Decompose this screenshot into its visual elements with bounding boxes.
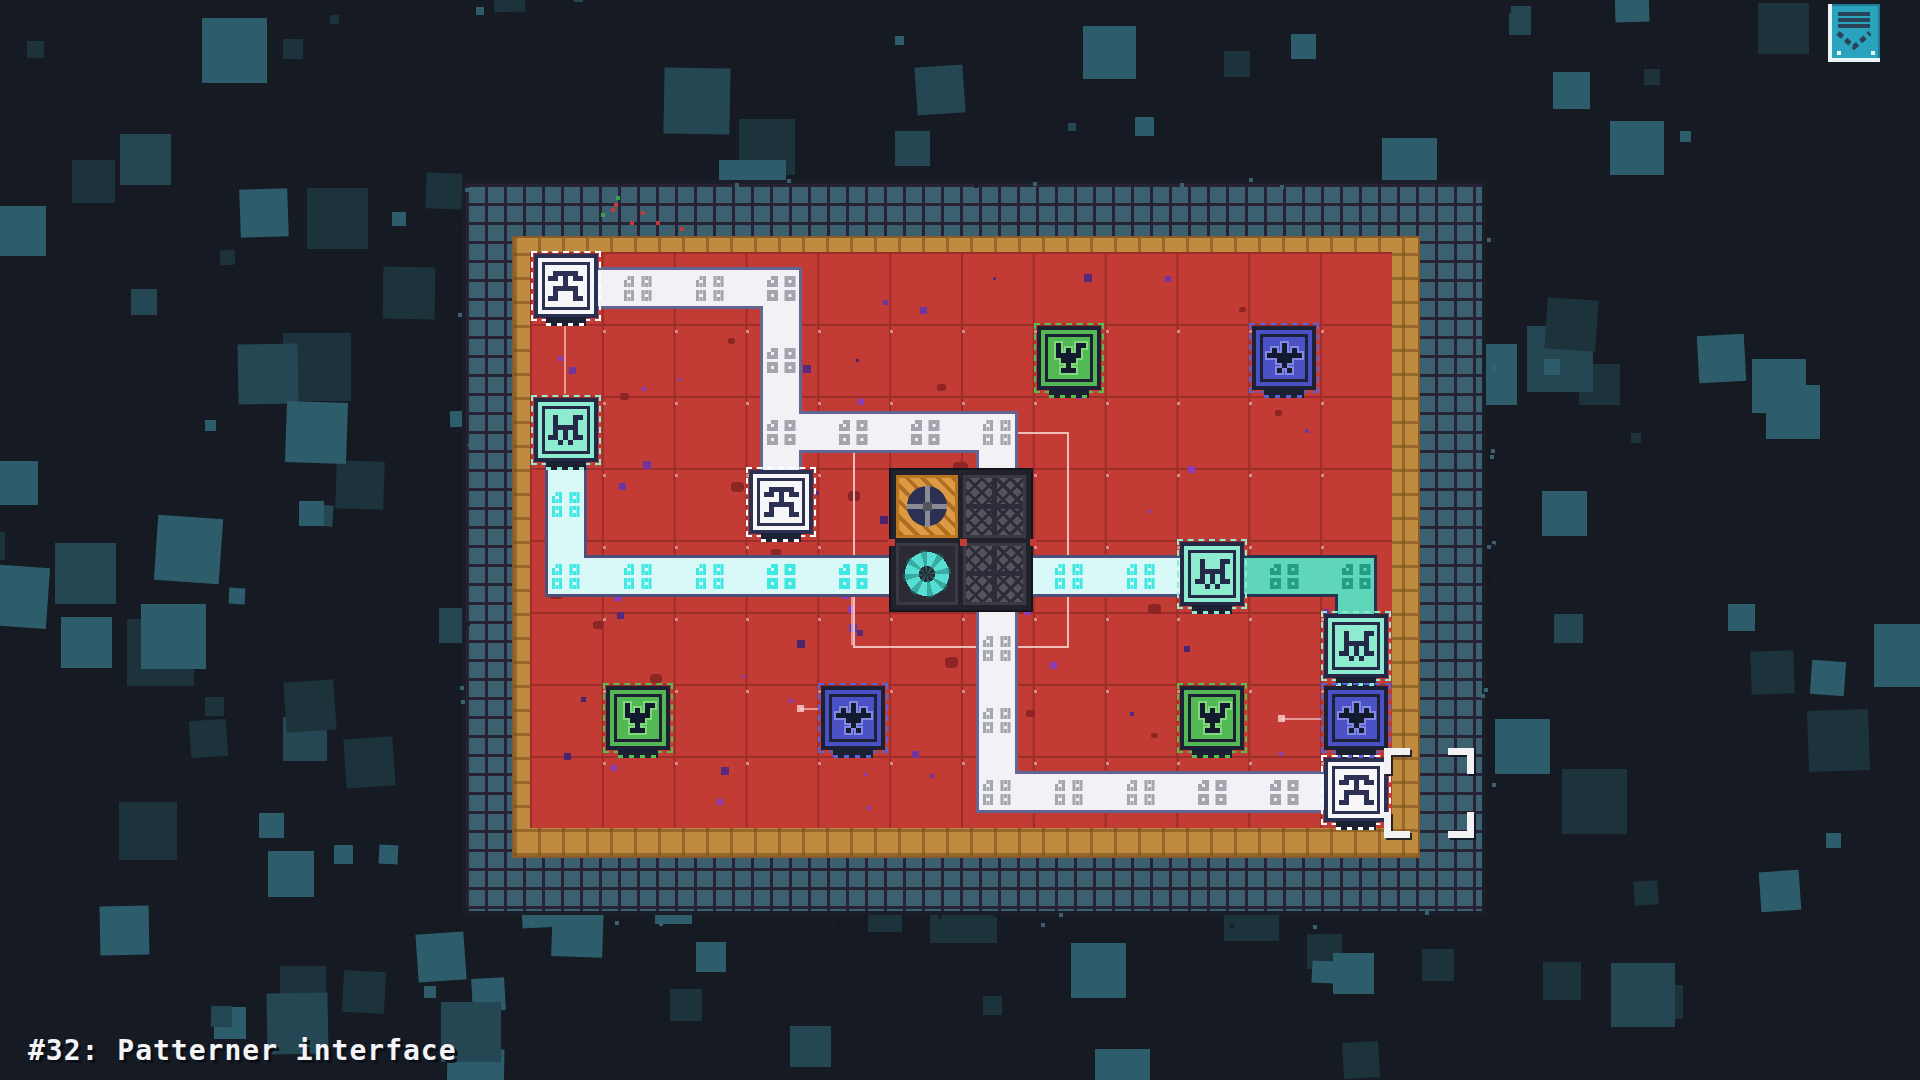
background-square xyxy=(27,41,44,58)
background-square xyxy=(1610,121,1664,175)
background-square xyxy=(1631,433,1641,443)
ring-dial xyxy=(903,550,951,598)
tile-goblet[interactable] xyxy=(606,686,670,750)
grid-dot xyxy=(1034,402,1037,405)
altar-glyph xyxy=(548,271,583,301)
background-square xyxy=(379,845,399,865)
background-square xyxy=(425,172,462,209)
emitter-glyph xyxy=(1339,631,1374,661)
background-square xyxy=(343,736,395,788)
tile-goblet[interactable] xyxy=(1180,686,1244,750)
grid-dot xyxy=(1106,762,1109,765)
background-square xyxy=(283,39,303,59)
pixels xyxy=(620,703,625,708)
grid-dot xyxy=(675,330,678,333)
background-square xyxy=(131,289,157,315)
grid-dot xyxy=(890,402,893,405)
tile-face xyxy=(1045,334,1093,382)
greek-key-ornament xyxy=(767,564,795,589)
path-ornament xyxy=(983,636,1011,661)
greek-key-ornament xyxy=(983,708,1011,733)
background-square xyxy=(1068,123,1076,131)
background-square xyxy=(1874,624,1920,687)
purple-splatter xyxy=(1130,712,1134,716)
purple-splatter xyxy=(1165,276,1171,282)
grid-dot xyxy=(1106,690,1109,693)
purple-splatter xyxy=(789,699,793,703)
purple-splatter xyxy=(856,359,859,362)
grid-dot xyxy=(962,762,965,765)
frame-speck xyxy=(832,921,836,925)
background-square xyxy=(383,267,436,320)
purple-splatter xyxy=(678,378,681,381)
greek-key-ornament xyxy=(624,564,652,589)
greek-key-ornament xyxy=(552,492,580,517)
grid-dot xyxy=(1106,330,1109,333)
frame-speck xyxy=(974,184,978,188)
tile-face xyxy=(542,406,590,454)
purple-splatter xyxy=(643,461,651,469)
machine-ornate-tile[interactable] xyxy=(963,475,1025,538)
background-square xyxy=(141,604,206,669)
frame-speck xyxy=(1425,911,1429,915)
background-square xyxy=(670,989,702,1021)
grid-dot xyxy=(818,618,821,621)
purple-splatter xyxy=(642,387,646,391)
frame-speck xyxy=(1041,923,1045,927)
background-square xyxy=(342,970,386,1014)
grid-dot xyxy=(890,330,893,333)
grid-dot xyxy=(1249,474,1252,477)
tile-socket xyxy=(761,533,801,542)
path-ornament xyxy=(1342,564,1370,589)
pixels xyxy=(696,276,700,280)
grid-dot xyxy=(1321,330,1324,333)
tile-face xyxy=(1188,694,1236,742)
frame-speck xyxy=(1493,578,1497,582)
dark-blob xyxy=(1026,710,1035,717)
background-square xyxy=(1611,963,1675,1027)
purple-splatter xyxy=(867,806,871,810)
link-hint-dot xyxy=(1278,715,1285,722)
purple-splatter xyxy=(1084,274,1092,282)
tile-socket xyxy=(833,749,873,758)
path-ornament xyxy=(983,420,1011,445)
grid-dot xyxy=(1106,474,1109,477)
background-square xyxy=(895,131,930,166)
grid-dot xyxy=(746,402,749,405)
background-square xyxy=(1633,880,1659,906)
frame-speck xyxy=(466,622,470,626)
tile-socket xyxy=(1049,389,1089,398)
frame-speck xyxy=(683,177,687,181)
tile-bird[interactable] xyxy=(1252,326,1316,390)
background-square xyxy=(1562,769,1627,834)
tile-socket xyxy=(1192,749,1232,758)
background-square xyxy=(476,7,484,15)
grid-dot xyxy=(746,546,749,549)
greek-key-ornament xyxy=(1342,564,1370,589)
level-label: #32: Patterner interface xyxy=(28,1034,457,1067)
path-ornament xyxy=(624,276,652,301)
frame-speck xyxy=(1487,545,1491,549)
bracket-corner xyxy=(1448,812,1474,838)
junction-dot xyxy=(960,539,967,546)
pixels xyxy=(624,564,628,568)
tile-bird[interactable] xyxy=(821,686,885,750)
tile-socket xyxy=(1336,821,1376,830)
pixels xyxy=(767,276,771,280)
tile-face xyxy=(1332,694,1380,742)
background-square xyxy=(1758,3,1809,54)
grid-dot xyxy=(746,330,749,333)
bird-glyph xyxy=(1339,703,1374,733)
frame-speck xyxy=(787,179,791,183)
grid-dot xyxy=(962,690,965,693)
background-square xyxy=(205,420,216,431)
path-ornament xyxy=(1198,780,1226,805)
tile-emitter[interactable] xyxy=(534,398,598,462)
pixels xyxy=(552,564,556,568)
greek-key-ornament xyxy=(983,780,1011,805)
tile-face xyxy=(829,694,877,742)
pixels xyxy=(983,780,987,784)
grid-dot xyxy=(603,618,606,621)
background-square xyxy=(120,134,171,185)
frame-speck xyxy=(1180,183,1184,187)
greek-key-ornament xyxy=(983,420,1011,445)
greek-key-ornament xyxy=(552,564,580,589)
tile-socket xyxy=(1264,389,1304,398)
background-square xyxy=(189,719,228,758)
pixels xyxy=(1195,559,1200,564)
frame-speck xyxy=(1481,694,1485,698)
frame-speck xyxy=(938,915,942,919)
background-square xyxy=(1553,72,1590,109)
frame-speck xyxy=(1492,366,1496,370)
grid-dot xyxy=(818,474,821,477)
patterner-machine-block[interactable] xyxy=(889,468,1033,612)
game-screen: #32: Patterner interface xyxy=(0,0,1920,1080)
corner-speck xyxy=(641,211,645,215)
background-square xyxy=(1544,297,1598,351)
dark-blob xyxy=(728,338,735,344)
background-square xyxy=(259,813,284,838)
purple-splatter xyxy=(858,399,864,405)
background-square xyxy=(1807,709,1870,772)
grid-dot xyxy=(962,402,965,405)
background-square xyxy=(335,460,385,510)
emitter-glyph xyxy=(548,415,583,445)
background-square xyxy=(1644,69,1660,85)
background-square xyxy=(1543,492,1575,524)
background-square xyxy=(1495,719,1550,774)
background-square xyxy=(1509,13,1531,35)
grid-dot xyxy=(1249,690,1252,693)
goblet-glyph xyxy=(620,703,655,733)
frame-speck xyxy=(1059,913,1063,917)
junction-dot xyxy=(888,539,895,546)
pixels xyxy=(1051,343,1056,348)
dark-blob xyxy=(1275,410,1282,416)
grid-dot xyxy=(1321,402,1324,405)
frame-speck xyxy=(455,225,459,229)
path-ornament xyxy=(767,276,795,301)
grid-dot xyxy=(675,762,678,765)
pixels xyxy=(983,636,987,640)
frame-speck xyxy=(1490,455,1494,459)
frame-speck xyxy=(1314,912,1318,916)
frame-speck xyxy=(460,686,464,690)
menu-button[interactable] xyxy=(1828,4,1880,62)
bird-glyph xyxy=(1267,343,1302,373)
purple-splatter xyxy=(569,367,576,374)
background-square xyxy=(696,942,726,972)
path-white xyxy=(979,774,1374,810)
path-ornament xyxy=(767,420,795,445)
frame-speck xyxy=(615,921,619,925)
pixels xyxy=(1198,780,1202,784)
grid-dot xyxy=(675,474,678,477)
background-square xyxy=(1544,359,1560,375)
tile-socket xyxy=(618,749,658,758)
frame-speck xyxy=(463,908,467,912)
grid-dot xyxy=(603,402,606,405)
purple-splatter xyxy=(564,753,571,760)
greek-key-ornament xyxy=(1055,564,1083,589)
selection-bracket xyxy=(1384,748,1474,838)
greek-key-ornament xyxy=(983,636,1011,661)
grid-dot xyxy=(675,402,678,405)
background-square xyxy=(330,15,339,24)
tile-face xyxy=(542,262,590,310)
tile-socket xyxy=(546,461,586,470)
path-ornament xyxy=(911,420,939,445)
grid-dot xyxy=(1249,546,1252,549)
grid-dot xyxy=(675,690,678,693)
frame-speck xyxy=(619,181,623,185)
emitter-glyph xyxy=(1195,559,1230,589)
dark-blob xyxy=(650,674,662,684)
background-square xyxy=(1810,660,1846,696)
grid-dot xyxy=(1321,546,1324,549)
frame-speck xyxy=(1243,177,1247,181)
background-square xyxy=(1826,833,1841,848)
grid-dot xyxy=(818,546,821,549)
grid-dot xyxy=(818,330,821,333)
background-square xyxy=(1543,962,1581,1000)
dark-blob xyxy=(937,384,946,391)
purple-splatter xyxy=(611,765,617,771)
tile-socket xyxy=(1192,605,1232,614)
path-ornament xyxy=(552,564,580,589)
pixels xyxy=(839,420,843,424)
background-square xyxy=(1095,1049,1150,1080)
background-square xyxy=(1759,870,1802,913)
background-square xyxy=(895,36,904,45)
grid-dot xyxy=(890,690,893,693)
grid-dot xyxy=(1177,618,1180,621)
pixels xyxy=(1127,564,1131,568)
background-square xyxy=(220,250,236,266)
pixels xyxy=(548,271,553,276)
grid-dot xyxy=(603,474,606,477)
purple-splatter xyxy=(558,356,563,361)
purple-splatter xyxy=(1148,510,1151,513)
bracket-corner xyxy=(1384,812,1410,838)
background-square xyxy=(268,851,314,897)
grid-dot xyxy=(603,546,606,549)
purple-splatter xyxy=(619,483,626,490)
path-ornament xyxy=(1127,780,1155,805)
dark-blob xyxy=(1148,604,1161,614)
background-square xyxy=(1728,604,1755,631)
grid-dot xyxy=(1321,474,1324,477)
grid-dot xyxy=(746,690,749,693)
background-square xyxy=(285,401,348,464)
background-square xyxy=(424,986,436,998)
purple-splatter xyxy=(581,697,586,702)
grid-dot xyxy=(603,762,606,765)
pixels xyxy=(1055,564,1059,568)
link-hint-dot xyxy=(797,705,804,712)
grid-dot xyxy=(1106,618,1109,621)
greek-key-ornament xyxy=(1055,780,1083,805)
purple-splatter xyxy=(721,767,729,775)
purple-splatter xyxy=(920,307,927,314)
pixels xyxy=(767,420,771,424)
background-square xyxy=(1422,949,1454,981)
background-square xyxy=(1680,131,1691,142)
path-white xyxy=(763,414,1014,450)
tile-face xyxy=(614,694,662,742)
pixels xyxy=(767,564,771,568)
background-square xyxy=(914,64,965,115)
dark-blob xyxy=(945,657,958,667)
background-square xyxy=(72,160,115,203)
grid-dot xyxy=(1249,762,1252,765)
pixels xyxy=(1339,631,1344,636)
pixels xyxy=(1055,780,1059,784)
background-square xyxy=(574,0,583,2)
frame-speck xyxy=(1033,182,1037,186)
greek-key-ornament xyxy=(1198,780,1226,805)
dashed-chevron-icon xyxy=(1835,30,1873,52)
corner-speck xyxy=(630,221,634,225)
tile-bird[interactable] xyxy=(1324,686,1388,750)
pixels xyxy=(624,276,628,280)
path-ornament xyxy=(767,348,795,373)
corner-speck xyxy=(616,196,620,200)
dark-blob xyxy=(731,482,744,492)
tile-emitter[interactable] xyxy=(1180,542,1244,606)
tile-altar[interactable] xyxy=(534,254,598,318)
background-square xyxy=(100,906,150,956)
path-ornament xyxy=(1270,780,1298,805)
frame-speck xyxy=(1249,178,1253,182)
background-square xyxy=(299,501,324,526)
greek-key-ornament xyxy=(767,276,795,301)
frame-speck xyxy=(1489,674,1493,678)
frame-speck xyxy=(461,700,465,704)
frame-speck xyxy=(468,443,472,447)
background-square xyxy=(1554,614,1583,643)
pixels xyxy=(1267,343,1272,348)
pixels xyxy=(911,420,915,424)
pixels xyxy=(764,487,769,492)
tile-face xyxy=(1260,334,1308,382)
pixels xyxy=(548,415,553,420)
background-square xyxy=(415,931,466,982)
purple-splatter xyxy=(1188,466,1195,473)
frame-speck xyxy=(1313,925,1317,929)
link-hint-line xyxy=(564,326,566,394)
path-ornament xyxy=(1055,780,1083,805)
greek-key-ornament xyxy=(1270,780,1298,805)
frame-speck xyxy=(1491,544,1495,548)
grid-dot xyxy=(1106,402,1109,405)
tile-altar[interactable] xyxy=(1324,758,1388,822)
background-square xyxy=(0,461,38,505)
dark-blob xyxy=(620,393,629,400)
tile-socket xyxy=(546,317,586,326)
goblet-glyph xyxy=(1051,343,1086,373)
grid-dot xyxy=(1177,762,1180,765)
tile-emitter[interactable] xyxy=(1324,614,1388,678)
grid-dot xyxy=(603,330,606,333)
grid-dot xyxy=(1177,330,1180,333)
background-square xyxy=(229,588,246,605)
grid-dot xyxy=(675,546,678,549)
greek-key-ornament xyxy=(624,276,652,301)
tile-face xyxy=(757,478,805,526)
frame-speck xyxy=(1280,185,1284,189)
grid-dot xyxy=(746,762,749,765)
background-square xyxy=(1697,334,1746,383)
path-ornament xyxy=(983,708,1011,733)
tile-socket xyxy=(1336,677,1376,686)
pixels xyxy=(983,708,987,712)
grid-dot xyxy=(1034,762,1037,765)
path-ornament xyxy=(983,780,1011,805)
machine-ornate-tile[interactable] xyxy=(963,543,1025,606)
greek-key-ornament xyxy=(839,564,867,589)
tile-goblet[interactable] xyxy=(1037,326,1101,390)
purple-splatter xyxy=(883,300,888,305)
tile-face xyxy=(1332,766,1380,814)
dark-blob xyxy=(1239,307,1246,313)
frame-speck xyxy=(530,921,534,925)
corner-speck xyxy=(611,208,615,212)
background-square xyxy=(790,1026,831,1067)
frame-speck xyxy=(1492,783,1496,787)
goblet-glyph xyxy=(1195,703,1230,733)
machine-ring-tile[interactable] xyxy=(896,543,958,606)
link-hint-line xyxy=(1281,718,1322,720)
background-square xyxy=(663,67,730,134)
background-square xyxy=(1614,0,1649,23)
background-square xyxy=(211,1006,233,1028)
grid-dot xyxy=(962,330,965,333)
purple-splatter xyxy=(1279,752,1283,756)
greek-key-ornament xyxy=(767,348,795,373)
purple-splatter xyxy=(742,675,745,678)
tile-altar[interactable] xyxy=(749,470,813,534)
purple-splatter xyxy=(864,773,867,776)
machine-gear-tile[interactable] xyxy=(896,475,958,538)
greek-key-ornament xyxy=(696,564,724,589)
path-ornament xyxy=(696,564,724,589)
